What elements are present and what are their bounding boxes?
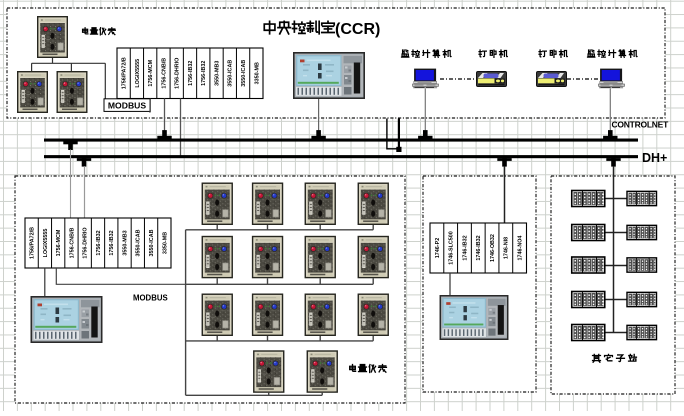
svg-text:1756/PA72/B: 1756/PA72/B: [122, 57, 128, 89]
svg-text:1746-IB32: 1746-IB32: [462, 235, 468, 260]
svg-text:3550-ICAB: 3550-ICAB: [136, 229, 142, 256]
svg-text:MODBUS: MODBUS: [108, 101, 146, 111]
svg-text:1746-NI8: 1746-NI8: [504, 237, 510, 259]
svg-text:3350-MB: 3350-MB: [162, 232, 168, 254]
svg-text:3550-ICAB: 3550-ICAB: [149, 229, 155, 256]
svg-text:1756-DHRIO: 1756-DHRIO: [175, 58, 181, 89]
svg-text:1756-MCM: 1756-MCM: [148, 59, 154, 86]
svg-text:LOGIX5555: LOGIX5555: [135, 59, 141, 88]
svg-text:3550-ICAB: 3550-ICAB: [241, 60, 247, 87]
svg-text:3350-MB: 3350-MB: [254, 62, 260, 84]
svg-text:(CCR): (CCR): [335, 21, 380, 38]
svg-text:3550-MB3: 3550-MB3: [214, 61, 220, 86]
svg-text:3550-MB3: 3550-MB3: [122, 230, 128, 255]
svg-text:3550-ICAB: 3550-ICAB: [228, 60, 234, 87]
svg-text:CONTROLNET: CONTROLNET: [612, 120, 670, 130]
svg-text:1756-CNB/B: 1756-CNB/B: [161, 58, 167, 89]
svg-text:1756-IB32: 1756-IB32: [96, 230, 102, 255]
svg-text:1756-CNB/B: 1756-CNB/B: [69, 227, 75, 258]
svg-text:1756/PA72/B: 1756/PA72/B: [30, 227, 36, 259]
svg-text:LOGIX5555: LOGIX5555: [43, 229, 49, 258]
svg-text:1746-NO4: 1746-NO4: [518, 236, 524, 261]
svg-text:DH+: DH+: [642, 151, 667, 165]
svg-text:1746-OB32: 1746-OB32: [490, 234, 496, 262]
svg-text:1746-IB32: 1746-IB32: [476, 235, 482, 260]
svg-text:1756-IB32: 1756-IB32: [201, 61, 207, 86]
svg-text:1756-DHRIO: 1756-DHRIO: [83, 227, 89, 258]
svg-text:1746-P2: 1746-P2: [435, 238, 441, 258]
svg-text:1746-SLC500: 1746-SLC500: [449, 231, 455, 265]
svg-text:1756-IB32: 1756-IB32: [188, 61, 194, 86]
svg-text:1756-MCM: 1756-MCM: [56, 229, 62, 256]
svg-text:MODBUS: MODBUS: [133, 294, 168, 303]
svg-text:1756-IB32: 1756-IB32: [109, 230, 115, 255]
